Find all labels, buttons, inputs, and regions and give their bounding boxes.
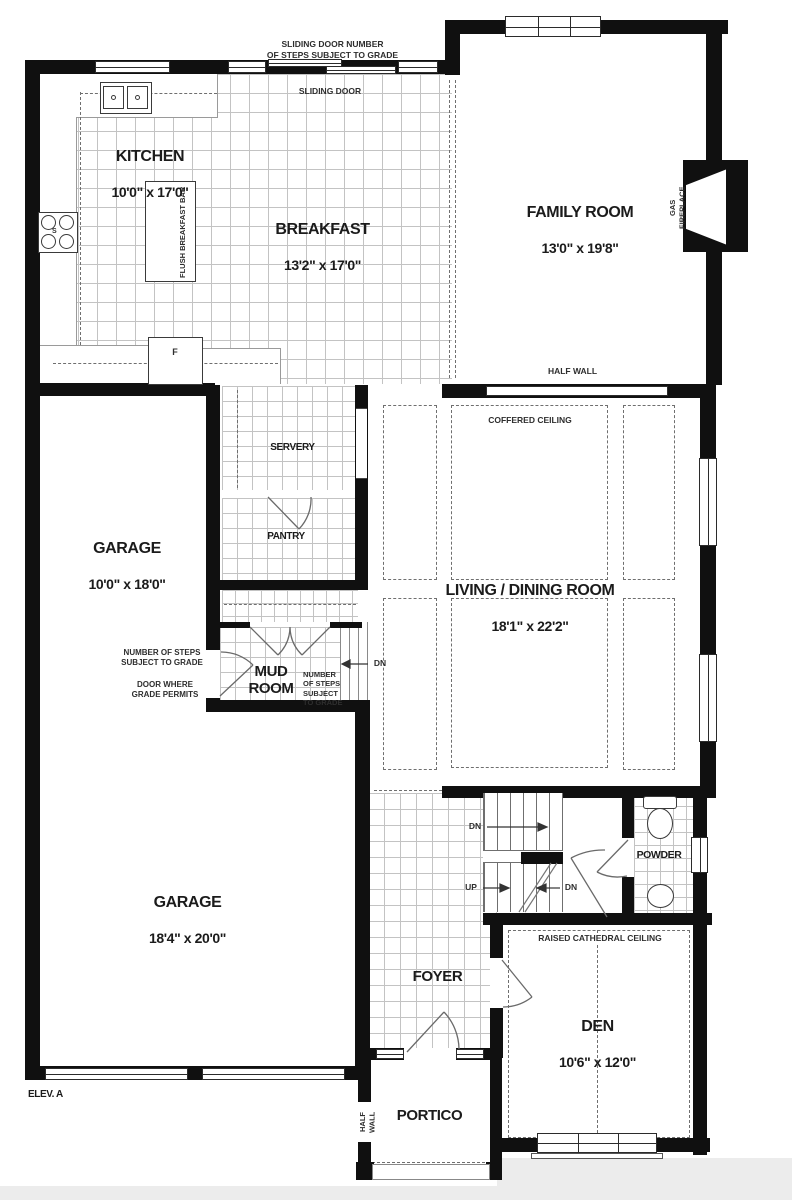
pantry-label: PANTRY — [250, 531, 322, 542]
room-dims: 10'6" x 12'0" — [540, 1055, 655, 1071]
staircase-upper-run — [483, 793, 563, 850]
portico-step-dash — [372, 1162, 490, 1163]
kitchen-breakfast-floor — [40, 74, 452, 384]
half-wall-portico-note: HALF WALL — [358, 1102, 371, 1142]
sliding-door-note: SLIDING DOOR — [290, 86, 370, 97]
room-name: GARAGE — [62, 540, 192, 558]
family-room-window — [505, 16, 601, 37]
floor-plan: S FLUSH BREAKFAST BAR F KITCHEN 10' — [0, 0, 792, 1200]
room-name: GARAGE — [120, 894, 255, 912]
garage-mud-door-opening — [206, 650, 220, 698]
dn-label: DN — [562, 882, 580, 893]
door-grade-note: DOOR WHERE GRADE PERMITS — [124, 680, 206, 700]
garage-door — [45, 1068, 188, 1080]
stove-label: S — [52, 228, 57, 237]
page-shading — [0, 1186, 792, 1200]
kitchen-sink-icon — [100, 82, 152, 114]
sliding-door-panel — [326, 66, 396, 74]
coffered-ceiling-panel — [623, 405, 675, 580]
wall-segment — [220, 622, 250, 628]
coffered-ceiling-panel — [451, 405, 608, 580]
wall-segment — [490, 1058, 502, 1162]
kitchen-counter-bottom-left — [40, 345, 148, 384]
dn-label: DN — [466, 821, 484, 832]
window-mullion — [618, 1134, 619, 1152]
room-dims: 18'1" x 22'2" — [430, 619, 630, 635]
window-mullion — [570, 17, 571, 36]
servery-opening — [356, 408, 367, 479]
stair-mid-wall — [521, 852, 563, 864]
room-dims: 10'0" x 18'0" — [62, 577, 192, 593]
powder-label: POWDER — [630, 850, 688, 862]
family-room-label: FAMILY ROOM 13'0" x 19'8" — [505, 186, 655, 274]
room-name: KITCHEN — [90, 148, 210, 166]
window — [699, 458, 717, 546]
cathedral-ceiling-note: RAISED CATHEDRAL CEILING — [520, 933, 680, 944]
sink-drain — [111, 95, 116, 100]
window-mullion — [578, 1134, 579, 1152]
fridge-label: F — [169, 347, 181, 358]
mud-room-steps — [340, 622, 370, 701]
room-name: BREAKFAST — [255, 221, 390, 239]
servery-label: SERVERY — [255, 442, 330, 453]
half-wall-note: HALF WALL — [540, 366, 605, 377]
toilet-bowl — [647, 808, 673, 839]
wall-segment — [206, 700, 370, 712]
stove-icon: S — [38, 212, 78, 253]
room-name: DEN — [540, 1018, 655, 1036]
entry-sidelite — [456, 1049, 484, 1059]
window — [228, 61, 266, 73]
den-label: DEN 10'6" x 12'0" — [540, 1000, 655, 1088]
sliding-door-steps-note: SLIDING DOOR NUMBER OF STEPS SUBJECT TO … — [250, 39, 415, 60]
servery-cabinet-dash — [237, 390, 238, 488]
coffered-ceiling-panel — [383, 405, 437, 580]
window — [699, 654, 717, 742]
breakfast-label: BREAKFAST 13'2" x 17'0" — [255, 203, 390, 291]
sink-drain — [135, 95, 140, 100]
mud-room-label: MUD ROOM — [235, 664, 307, 698]
gas-fireplace-note: GAS FIREPLACE — [668, 178, 681, 238]
powder-window — [691, 837, 708, 873]
staircase-lower-run — [483, 863, 563, 912]
servery-floor — [222, 386, 358, 490]
up-label: UP — [462, 882, 480, 893]
window — [95, 61, 170, 73]
upper-cabinet-dash — [80, 92, 81, 345]
wall-segment — [358, 1058, 371, 1104]
wall-segment — [483, 913, 712, 925]
front-door-opening — [404, 1048, 456, 1060]
closet-floor — [222, 590, 358, 622]
portico-step — [372, 1164, 490, 1180]
steps-grade-note-left: NUMBER OF STEPS SUBJECT TO GRADE — [118, 648, 206, 668]
coffered-ceiling-note: COFFERED CEILING — [455, 415, 605, 426]
window — [398, 61, 438, 73]
room-name: FAMILY ROOM — [505, 204, 655, 222]
kitchen-label: KITCHEN 10'0" x 17'0" — [90, 130, 210, 218]
dn-label: DN — [371, 658, 389, 669]
stove-burner — [59, 234, 74, 249]
breakfast-family-boundary — [449, 80, 450, 378]
den-window — [537, 1133, 657, 1153]
portico-label: PORTICO — [392, 1108, 467, 1125]
coffered-ceiling-panel — [383, 598, 437, 770]
room-dims: 18'4" x 20'0" — [120, 931, 255, 947]
entry-sidelite — [376, 1049, 404, 1059]
window-mullion — [538, 17, 539, 36]
room-name: LIVING / DINING ROOM — [430, 582, 630, 600]
garage-main-label: GARAGE 18'4" x 20'0" — [120, 876, 255, 964]
stove-burner — [59, 215, 74, 230]
kitchen-counter-bottom-right — [203, 348, 281, 384]
room-dims: 13'2" x 17'0" — [255, 258, 390, 274]
den-window-sill — [531, 1153, 663, 1159]
elevation-label: ELEV. A — [28, 1089, 88, 1100]
sink-basin-icon — [647, 884, 674, 908]
room-dims: 13'0" x 19'8" — [505, 241, 655, 257]
wall-segment — [206, 580, 362, 590]
living-dining-label: LIVING / DINING ROOM 18'1" x 22'2" — [430, 564, 630, 652]
room-dims: 10'0" x 17'0" — [90, 185, 210, 201]
coffered-ceiling-panel — [623, 598, 675, 770]
foyer-label: FOYER — [400, 969, 475, 986]
fridge-icon — [148, 337, 203, 385]
steps-grade-note-mud: NUMBER OF STEPS SUBJECT TO GRADE — [303, 670, 343, 708]
wall-segment — [355, 712, 370, 1080]
garage-door — [202, 1068, 345, 1080]
half-wall-insert — [486, 386, 668, 396]
garage-upper-label: GARAGE 10'0" x 18'0" — [62, 522, 192, 610]
living-opening-dash — [374, 790, 442, 791]
den-door-opening — [490, 958, 503, 1008]
closet-rod-dash — [224, 604, 356, 605]
breakfast-family-boundary — [455, 80, 456, 378]
wall-segment — [330, 622, 362, 628]
